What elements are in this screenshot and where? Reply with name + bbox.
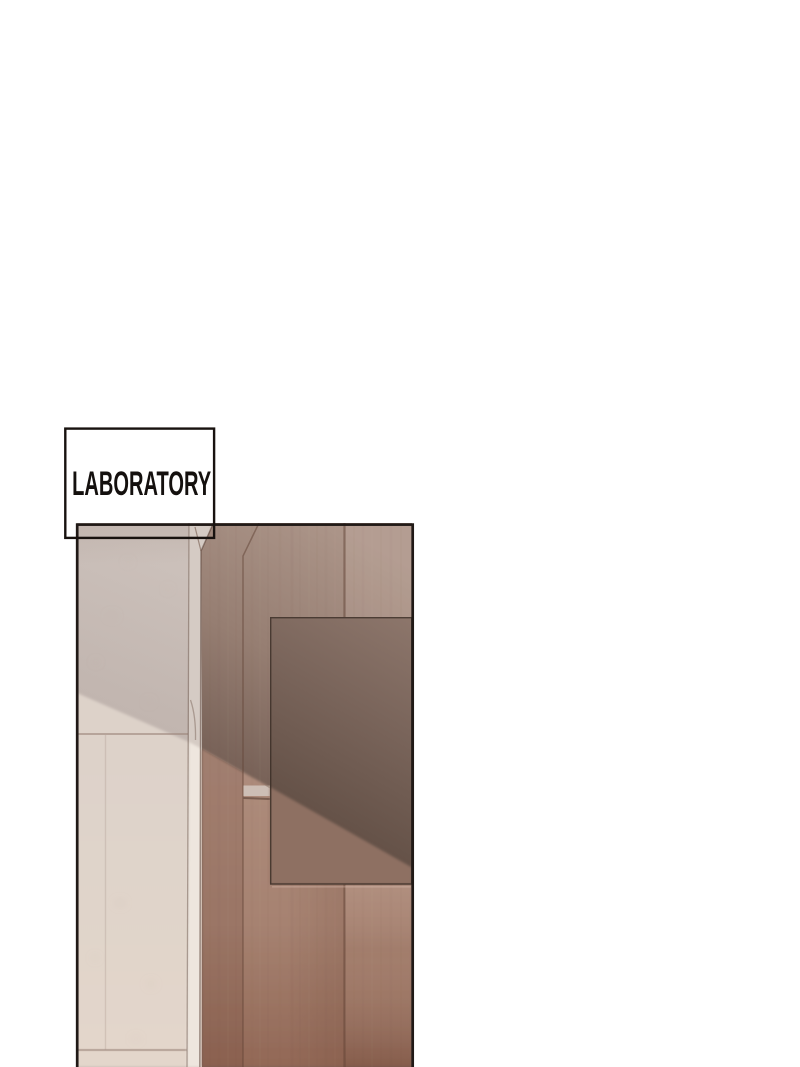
svg-text:LABORATORY: LABORATORY — [72, 465, 211, 503]
